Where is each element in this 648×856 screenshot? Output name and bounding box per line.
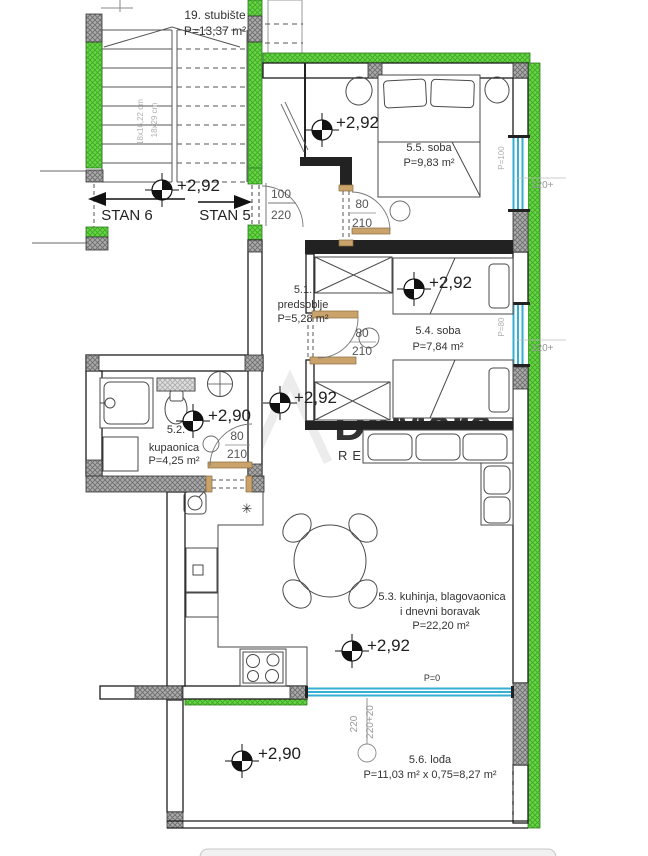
stair-tread-dim: 18x29 cm xyxy=(150,102,159,137)
floor-plan: DeMare REAL ESTATE 18x16,22 cm xyxy=(0,0,648,856)
slider-dim-b: 220+20 xyxy=(365,705,376,739)
stairwell: 18x16,22 cm 18x29 cm 19. stubište P=13,3… xyxy=(101,0,303,182)
kitchen-counter xyxy=(184,492,307,686)
room51-area: P=5,28 m² xyxy=(277,313,328,325)
room53-area: P=22,20 m² xyxy=(412,620,470,632)
level-room54: +2,92 xyxy=(429,273,472,292)
door54-height: 210 xyxy=(352,344,372,358)
stan5-label: STAN 5 xyxy=(199,207,250,224)
double-bed xyxy=(378,75,480,197)
room54-label: 5.4. soba xyxy=(415,325,461,337)
door52-dim: 80 210 xyxy=(225,429,250,461)
toilet-cistern xyxy=(157,378,195,391)
door54-dim: 80 210 xyxy=(350,326,376,358)
kitchen-sink xyxy=(184,492,206,514)
sliding-door-loggia xyxy=(305,686,514,698)
sofa xyxy=(363,430,513,525)
wall-notch xyxy=(268,0,302,55)
room53-line2: i dnevni boravak xyxy=(400,606,481,618)
level-living: +2,92 xyxy=(367,636,410,655)
fridge xyxy=(186,548,217,593)
nightstand-left xyxy=(343,74,375,108)
room52-area: P=4,25 m² xyxy=(148,455,199,467)
boiler-symbol-icon: ✳ xyxy=(242,501,253,516)
entry-door-width: 100 xyxy=(271,187,291,201)
stair-riser-dim: 18x16,22 cm xyxy=(136,99,145,145)
window55-dim: 120+ xyxy=(531,180,554,191)
room51-name: predsoblje xyxy=(278,299,329,311)
room53-line1: 5.3. kuhinja, blagovaonica xyxy=(378,591,506,603)
room56-label: 5.6. lođa xyxy=(409,754,452,766)
entry-door-dim: 100 220 xyxy=(266,183,296,226)
dining-table xyxy=(277,508,383,614)
slider-dim: 220 220+20 xyxy=(349,698,376,762)
level-marker-icon xyxy=(225,744,259,778)
slider-dim-a: 220 xyxy=(349,715,360,732)
stairwell-label: 19. stubište xyxy=(184,8,246,22)
stan6-label: STAN 6 xyxy=(101,207,152,224)
door52-height: 210 xyxy=(227,447,247,461)
stairwell-area: P=13,37 m² xyxy=(184,24,246,38)
stan6-arrow: STAN 6 xyxy=(88,192,185,224)
level-room55: +2,92 xyxy=(336,113,379,132)
room51-num: 5.1. xyxy=(294,284,312,296)
level-marker-icon xyxy=(335,634,369,668)
room52-name: kupaonica xyxy=(149,442,200,454)
window55-parapet: P=100 xyxy=(497,146,506,170)
room54-area: P=7,84 m² xyxy=(412,341,463,353)
partial-ui-element xyxy=(200,849,556,856)
level-hall: +2,92 xyxy=(294,388,337,407)
level-stairhall: +2,92 xyxy=(177,176,220,195)
door54-width: 80 xyxy=(355,326,369,340)
room55-label: 5.5. soba xyxy=(406,142,452,154)
stove xyxy=(240,649,286,686)
door55-height: 210 xyxy=(352,216,372,230)
slider-parapet: P=0 xyxy=(424,673,440,683)
room56-area: P=11,03 m² x 0,75=8,27 m² xyxy=(363,769,496,781)
floor-plan-page: DeMare REAL ESTATE 18x16,22 cm xyxy=(0,0,648,856)
door52-width: 80 xyxy=(230,429,244,443)
shower xyxy=(100,378,153,428)
wardrobe-1 xyxy=(315,257,392,293)
level-marker-icon xyxy=(145,173,179,207)
single-bed-2 xyxy=(393,360,513,418)
level-bath: +2,90 xyxy=(208,406,251,425)
level-loggia: +2,90 xyxy=(258,744,301,763)
door55-width: 80 xyxy=(355,197,369,211)
stan5-arrow: STAN 5 xyxy=(198,195,252,224)
level-marker-icon xyxy=(305,113,339,147)
nightstand-right xyxy=(483,75,511,105)
arrow-left-icon xyxy=(88,192,106,206)
entry-door-height: 220 xyxy=(271,208,291,222)
window54-parapet: P=80 xyxy=(497,317,506,336)
room55-area: P=9,83 m² xyxy=(403,157,454,169)
room52-num: 5.2. xyxy=(167,424,185,436)
washer-cabinet xyxy=(103,437,138,471)
window-5-5 xyxy=(508,135,530,212)
door55-dim: 80 210 xyxy=(350,197,376,230)
window54-dim: 120+ xyxy=(531,343,554,354)
